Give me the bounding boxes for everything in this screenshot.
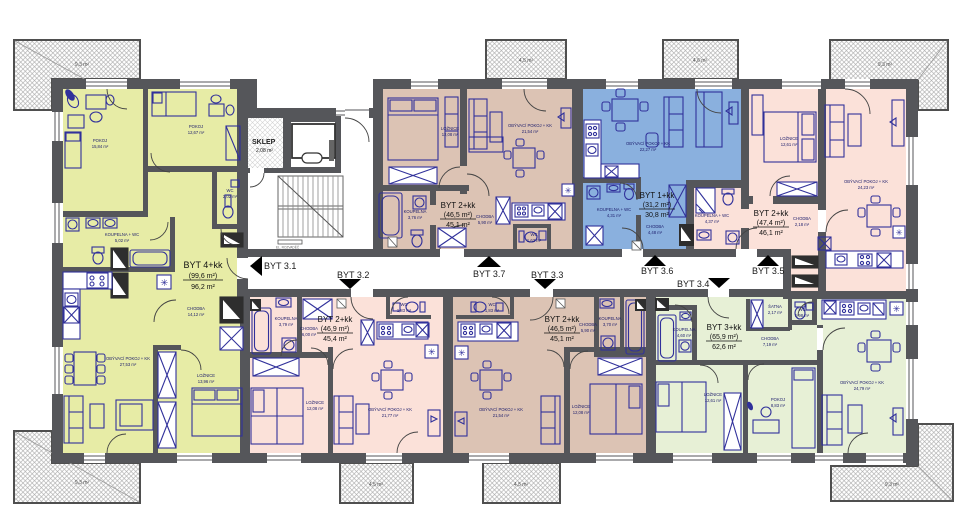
svg-text:OBÝVACÍ POKOJ + KK: OBÝVACÍ POKOJ + KK — [840, 380, 884, 385]
svg-text:6,00 m²: 6,00 m² — [302, 332, 317, 337]
svg-text:✳: ✳ — [160, 278, 168, 289]
svg-text:2,18 m²: 2,18 m² — [795, 222, 810, 227]
svg-text:(99,6 m²): (99,6 m²) — [189, 273, 217, 280]
svg-text:(47,4 m²): (47,4 m²) — [757, 220, 785, 227]
svg-text:KOUPELNA: KOUPELNA — [673, 327, 696, 332]
svg-text:9,3 m²: 9,3 m² — [885, 482, 900, 488]
svg-text:SKLEP: SKLEP — [252, 139, 276, 146]
svg-text:27,53 m²: 27,53 m² — [120, 362, 137, 367]
svg-text:OBÝVACÍ POKOJ + KK: OBÝVACÍ POKOJ + KK — [508, 123, 552, 128]
svg-text:2,08 m²: 2,08 m² — [256, 148, 273, 154]
svg-text:13,96 m²: 13,96 m² — [198, 379, 215, 384]
svg-text:CHODBA: CHODBA — [579, 322, 597, 327]
svg-text:4,5 m²: 4,5 m² — [514, 482, 529, 488]
svg-text:24,23 m²: 24,23 m² — [858, 185, 875, 190]
svg-text:WC: WC — [401, 302, 408, 307]
svg-text:62,6 m²: 62,6 m² — [712, 344, 736, 351]
svg-text:4,31 m²: 4,31 m² — [607, 213, 622, 218]
svg-text:5,90 m²: 5,90 m² — [478, 220, 493, 225]
svg-text:2,17 m²: 2,17 m² — [768, 310, 783, 315]
svg-text:BYT 3.1: BYT 3.1 — [264, 261, 296, 271]
svg-text:3,70 m²: 3,70 m² — [603, 322, 618, 327]
svg-text:14,12 m²: 14,12 m² — [188, 312, 205, 317]
svg-text:POKOJ: POKOJ — [771, 397, 785, 402]
svg-text:OBÝVACÍ POKOJ + KK: OBÝVACÍ POKOJ + KK — [479, 407, 523, 412]
svg-text:CHODBA: CHODBA — [300, 326, 318, 331]
svg-text:45,4 m²: 45,4 m² — [323, 336, 347, 343]
svg-text:4,6 m²: 4,6 m² — [693, 58, 708, 64]
svg-text:4,5 m²: 4,5 m² — [519, 58, 534, 64]
svg-text:✳: ✳ — [893, 304, 901, 314]
svg-text:BYT 2+kk: BYT 2+kk — [545, 315, 581, 324]
svg-text:OBÝVACÍ POKOJ + KK: OBÝVACÍ POKOJ + KK — [368, 407, 412, 412]
svg-text:8,83 m²: 8,83 m² — [771, 403, 786, 408]
svg-text:4,5 m²: 4,5 m² — [369, 482, 384, 488]
svg-text:15,84 m²: 15,84 m² — [92, 144, 109, 149]
svg-text:5,02 m²: 5,02 m² — [115, 238, 130, 243]
svg-text:1,83 m²: 1,83 m² — [397, 308, 412, 313]
svg-text:12,61 m²: 12,61 m² — [705, 398, 722, 403]
svg-text:12,61 m²: 12,61 m² — [781, 142, 798, 147]
svg-text:21,77 m²: 21,77 m² — [382, 413, 399, 418]
svg-text:WC: WC — [227, 188, 234, 193]
svg-text:9,3 m²: 9,3 m² — [75, 480, 90, 486]
svg-text:12,08 m²: 12,08 m² — [307, 406, 324, 411]
svg-text:21,54 m²: 21,54 m² — [493, 413, 510, 418]
svg-text:3,76 m²: 3,76 m² — [408, 215, 423, 220]
svg-text:✳: ✳ — [896, 228, 904, 238]
svg-text:✳: ✳ — [428, 347, 436, 357]
svg-text:1,63 m²: 1,63 m² — [527, 238, 542, 243]
svg-text:(46,5 m²): (46,5 m²) — [548, 326, 576, 333]
svg-text:CHODBA: CHODBA — [476, 214, 494, 219]
svg-text:BYT 3.2: BYT 3.2 — [337, 270, 369, 280]
svg-text:BYT 3.3: BYT 3.3 — [531, 270, 563, 280]
svg-text:4,60 m²: 4,60 m² — [677, 333, 692, 338]
svg-text:EL. ROZVADĚČ: EL. ROZVADĚČ — [276, 245, 300, 250]
svg-text:BYT 1+kk: BYT 1+kk — [640, 191, 676, 200]
svg-text:CHODBA: CHODBA — [793, 216, 811, 221]
svg-text:POKOJ: POKOJ — [93, 138, 107, 143]
svg-text:CHODBA: CHODBA — [187, 306, 205, 311]
svg-text:LOŽNICE: LOŽNICE — [704, 392, 722, 397]
svg-text:OBÝVACÍ POKOJ + KK: OBÝVACÍ POKOJ + KK — [626, 141, 670, 146]
svg-text:5,90 m²: 5,90 m² — [581, 328, 596, 333]
svg-text:✳: ✳ — [458, 348, 466, 358]
svg-text:KOUPELNA + WC: KOUPELNA + WC — [105, 232, 139, 237]
svg-text:WC: WC — [531, 232, 538, 237]
svg-text:LOŽNICE: LOŽNICE — [197, 373, 215, 378]
svg-text:BYT 2+kk: BYT 2+kk — [754, 209, 790, 218]
svg-text:LOŽNICE: LOŽNICE — [306, 400, 324, 405]
svg-text:BYT 3+kk: BYT 3+kk — [707, 323, 743, 332]
svg-text:CHODBA: CHODBA — [646, 224, 664, 229]
svg-text:BYT 2+kk: BYT 2+kk — [441, 201, 477, 210]
svg-text:BYT 2+kk: BYT 2+kk — [318, 315, 354, 324]
svg-text:22,27 m²: 22,27 m² — [640, 147, 657, 152]
svg-text:(46,5 m²): (46,5 m²) — [444, 212, 472, 219]
svg-text:KOUPELNA + WC: KOUPELNA + WC — [695, 213, 729, 218]
svg-text:4,48 m²: 4,48 m² — [648, 230, 663, 235]
svg-text:(65,9 m²): (65,9 m²) — [710, 334, 738, 341]
svg-text:24,79 m²: 24,79 m² — [854, 386, 871, 391]
svg-text:9,3 m²: 9,3 m² — [878, 62, 893, 68]
svg-text:CHODBA: CHODBA — [761, 336, 779, 341]
svg-text:12,67 m²: 12,67 m² — [188, 130, 205, 135]
svg-text:2,02 m²: 2,02 m² — [223, 194, 238, 199]
svg-text:12,08 m²: 12,08 m² — [573, 410, 590, 415]
svg-text:45,1 m²: 45,1 m² — [446, 222, 470, 229]
svg-text:46,1 m²: 46,1 m² — [759, 230, 783, 237]
svg-text:7,19 m²: 7,19 m² — [763, 342, 778, 347]
svg-text:21,54 m²: 21,54 m² — [522, 129, 539, 134]
svg-text:OBÝVACÍ POKOJ + KK: OBÝVACÍ POKOJ + KK — [106, 356, 150, 361]
svg-text:BYT 3.5: BYT 3.5 — [752, 266, 784, 276]
svg-text:1,83 m²: 1,83 m² — [485, 308, 500, 313]
svg-text:BYT 4+kk: BYT 4+kk — [183, 260, 223, 270]
svg-text:LOŽNICE: LOŽNICE — [572, 404, 590, 409]
svg-text:1,98 m²: 1,98 m² — [795, 313, 810, 318]
svg-text:KOUPELNA: KOUPELNA — [275, 316, 298, 321]
svg-text:LOŽNICE: LOŽNICE — [441, 126, 459, 131]
svg-text:45,1 m²: 45,1 m² — [550, 336, 574, 343]
svg-text:ŠATNA: ŠATNA — [768, 304, 782, 309]
svg-text:(31,2 m²): (31,2 m²) — [643, 202, 671, 209]
svg-text:BYT 3.6: BYT 3.6 — [641, 266, 673, 276]
svg-text:KOUPELNA: KOUPELNA — [404, 209, 427, 214]
svg-text:9,3 m²: 9,3 m² — [75, 62, 90, 68]
svg-text:BYT 3.4: BYT 3.4 — [677, 279, 709, 289]
svg-text:LOŽNICE: LOŽNICE — [780, 136, 798, 141]
svg-text:30,8 m²: 30,8 m² — [645, 212, 669, 219]
svg-text:KOUPELNA + WC: KOUPELNA + WC — [597, 207, 631, 212]
svg-text:96,2 m²: 96,2 m² — [191, 284, 215, 291]
svg-text:OBÝVACÍ POKOJ + KK: OBÝVACÍ POKOJ + KK — [844, 179, 888, 184]
svg-text:KOUPELNA: KOUPELNA — [599, 316, 622, 321]
svg-text:12,08 m²: 12,08 m² — [442, 132, 459, 137]
svg-text:4,37 m²: 4,37 m² — [705, 219, 720, 224]
svg-text:BYT 3.7: BYT 3.7 — [473, 269, 505, 279]
svg-text:WC: WC — [489, 302, 496, 307]
svg-text:POKOJ: POKOJ — [189, 124, 203, 129]
svg-text:3,79 m²: 3,79 m² — [279, 322, 294, 327]
svg-text:(46,9 m²): (46,9 m²) — [321, 326, 349, 333]
svg-text:✳: ✳ — [565, 186, 573, 196]
